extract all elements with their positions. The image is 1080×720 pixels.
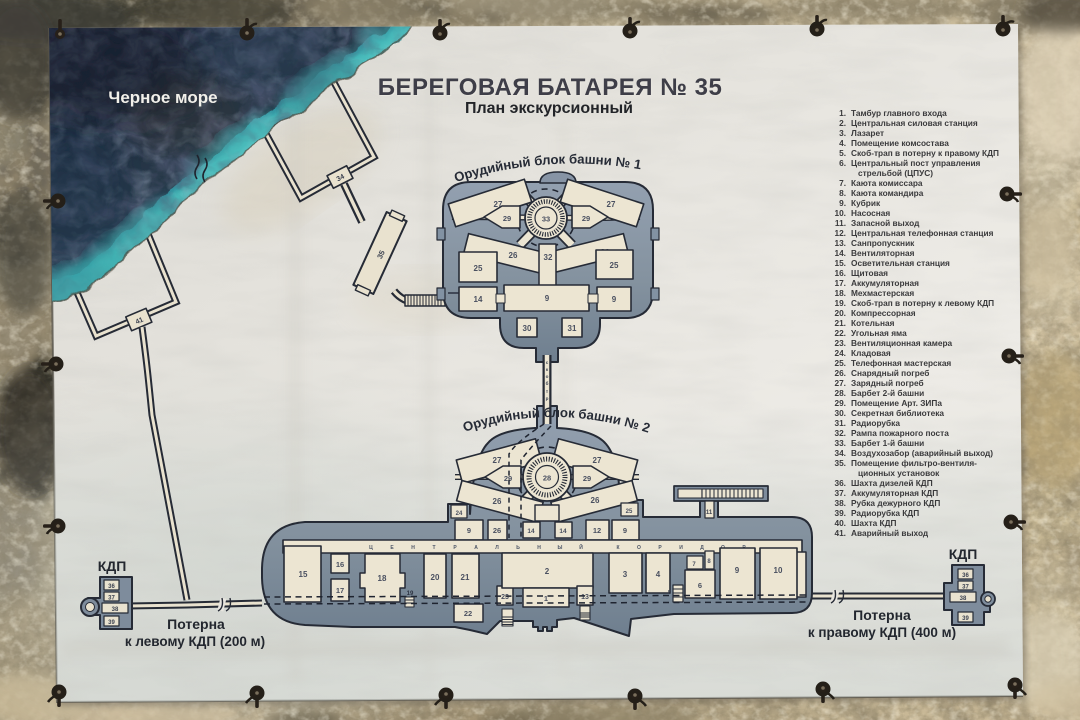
svg-text:Телефонная мастерская: Телефонная мастерская [851, 358, 951, 368]
svg-text:5.: 5. [839, 148, 846, 158]
svg-text:Скоб-трап в потерну к правому: Скоб-трап в потерну к правому КДП [851, 148, 999, 158]
svg-text:16.: 16. [834, 268, 846, 278]
svg-text:Й: Й [579, 543, 583, 551]
svg-text:Помещение комсостава: Помещение комсостава [851, 138, 949, 148]
svg-text:11.: 11. [835, 218, 846, 228]
svg-text:Зарядный погреб: Зарядный погреб [851, 378, 924, 388]
svg-text:Аварийный выход: Аварийный выход [851, 528, 929, 538]
svg-text:стрельбой (ЦПУС): стрельбой (ЦПУС) [858, 168, 933, 178]
svg-text:18.: 18. [834, 288, 846, 298]
svg-text:17.: 17. [834, 278, 846, 288]
svg-text:26: 26 [493, 497, 502, 506]
svg-text:10: 10 [774, 566, 783, 575]
svg-text:34.: 34. [834, 448, 846, 458]
svg-text:35.: 35. [834, 458, 846, 468]
svg-text:36.: 36. [834, 478, 846, 488]
svg-text:19.: 19. [834, 298, 846, 308]
svg-text:3: 3 [623, 570, 628, 579]
svg-text:4.: 4. [839, 138, 846, 148]
svg-text:24: 24 [456, 511, 463, 517]
svg-text:33: 33 [542, 215, 550, 224]
svg-text:25: 25 [626, 509, 633, 515]
svg-text:Л: Л [495, 545, 499, 551]
svg-text:План экскурсионный: План экскурсионный [465, 100, 633, 117]
svg-text:Помещение фильтро-вентиля-: Помещение фильтро-вентиля- [851, 458, 977, 468]
svg-text:б: б [546, 380, 549, 386]
svg-text:38: 38 [112, 607, 119, 613]
svg-text:Насосная: Насосная [851, 208, 890, 218]
svg-text:А: А [474, 545, 478, 551]
svg-text:30: 30 [523, 324, 532, 333]
svg-text:24.: 24. [834, 348, 846, 358]
svg-text:О: О [637, 545, 641, 551]
svg-text:к левому КДП (200 м): к левому КДП (200 м) [125, 634, 265, 649]
svg-text:Центральная телефонная станция: Центральная телефонная станция [851, 228, 994, 238]
svg-text:33.: 33. [834, 438, 846, 448]
svg-text:Скоб-трап в потерну к левому К: Скоб-трап в потерну к левому КДП [851, 298, 994, 308]
svg-text:Лазарет: Лазарет [851, 128, 884, 138]
svg-text:41.: 41. [834, 528, 846, 538]
svg-text:26: 26 [509, 251, 518, 260]
svg-text:18: 18 [378, 574, 387, 583]
svg-text:13: 13 [581, 594, 589, 601]
svg-text:21.: 21. [834, 318, 846, 328]
svg-text:Угольная яма: Угольная яма [851, 328, 907, 338]
svg-text:40.: 40. [834, 518, 846, 528]
svg-text:Шахта КДП: Шахта КДП [851, 518, 897, 528]
svg-text:27.: 27. [834, 378, 846, 388]
svg-text:Центральная силовая станция: Центральная силовая станция [851, 118, 978, 128]
svg-text:25.: 25. [834, 358, 846, 368]
svg-text:Кладовая: Кладовая [851, 348, 891, 358]
svg-text:БЕРЕГОВАЯ БАТАРЕЯ № 35: БЕРЕГОВАЯ БАТАРЕЯ № 35 [378, 74, 723, 101]
svg-text:Щитовая: Щитовая [851, 268, 888, 278]
svg-text:27: 27 [493, 456, 502, 465]
svg-text:Барбет 2-й башни: Барбет 2-й башни [851, 388, 924, 398]
svg-text:Ь: Ь [516, 545, 520, 551]
svg-text:Помещение Арт. ЗИПа: Помещение Арт. ЗИПа [851, 398, 942, 408]
svg-text:25: 25 [610, 261, 619, 270]
svg-text:Кубрик: Кубрик [851, 198, 881, 208]
svg-text:17: 17 [336, 586, 344, 595]
svg-text:КДП: КДП [949, 546, 978, 562]
svg-text:29: 29 [503, 214, 511, 223]
svg-text:32.: 32. [834, 428, 846, 438]
svg-text:Каюта комиссара: Каюта комиссара [851, 178, 923, 188]
svg-text:32: 32 [544, 253, 553, 262]
svg-text:39: 39 [108, 620, 115, 626]
svg-text:КДП: КДП [98, 558, 127, 574]
svg-text:Рубка дежурного КДП: Рубка дежурного КДП [851, 498, 940, 508]
svg-text:Центральный пост управления: Центральный пост управления [851, 158, 981, 168]
svg-text:37: 37 [108, 596, 115, 602]
svg-text:Потерна: Потерна [853, 607, 911, 623]
svg-text:Ц: Ц [369, 545, 373, 551]
svg-text:39: 39 [962, 616, 969, 622]
svg-text:10.: 10. [834, 208, 846, 218]
svg-text:29: 29 [583, 474, 591, 483]
svg-text:6: 6 [698, 581, 702, 590]
svg-text:Санпропускник: Санпропускник [851, 238, 915, 248]
svg-text:Рампа пожарного поста: Рампа пожарного поста [851, 428, 949, 438]
svg-text:26: 26 [591, 496, 600, 505]
svg-text:Шахта дизелей КДП: Шахта дизелей КДП [851, 478, 933, 488]
svg-text:31: 31 [568, 324, 577, 333]
svg-text:4: 4 [656, 570, 661, 579]
svg-text:Радиорубка: Радиорубка [851, 418, 900, 428]
svg-text:25: 25 [474, 264, 483, 273]
svg-text:14: 14 [474, 295, 483, 304]
svg-text:9: 9 [623, 526, 627, 535]
svg-text:12.: 12. [834, 228, 846, 238]
svg-text:37: 37 [962, 585, 969, 591]
svg-text:Д: Д [700, 545, 704, 551]
svg-text:39.: 39. [834, 508, 846, 518]
svg-text:15.: 15. [834, 258, 846, 268]
svg-text:9: 9 [735, 566, 740, 575]
svg-text:Потерна: Потерна [167, 616, 225, 632]
svg-text:Аккумуляторная КДП: Аккумуляторная КДП [851, 488, 938, 498]
svg-text:с: с [546, 360, 549, 365]
svg-text:Компрессорная: Компрессорная [851, 308, 916, 318]
svg-text:27: 27 [607, 200, 616, 209]
svg-text:Каюта командира: Каюта командира [851, 188, 924, 198]
svg-text:11: 11 [706, 510, 713, 516]
svg-text:р: р [546, 396, 549, 401]
svg-text:27: 27 [494, 200, 503, 209]
svg-text:Н: Н [411, 545, 415, 551]
svg-text:Н: Н [537, 545, 541, 551]
svg-text:Запасной выход: Запасной выход [851, 218, 920, 228]
svg-text:15: 15 [299, 570, 308, 579]
svg-text:3.: 3. [839, 128, 846, 138]
svg-text:Т: Т [432, 545, 435, 551]
svg-text:22: 22 [464, 609, 472, 618]
svg-text:14.: 14. [834, 248, 846, 258]
svg-text:20.: 20. [834, 308, 846, 318]
svg-text:Вентиляционная камера: Вентиляционная камера [851, 338, 953, 348]
svg-text:28: 28 [543, 474, 551, 483]
svg-text:Радиорубка КДП: Радиорубка КДП [851, 508, 919, 518]
svg-text:23.: 23. [834, 338, 846, 348]
svg-text:38.: 38. [834, 498, 846, 508]
svg-text:9: 9 [612, 295, 617, 304]
svg-text:Снарядный погреб: Снарядный погреб [851, 368, 929, 378]
svg-text:2.: 2. [839, 118, 846, 128]
svg-text:29: 29 [504, 474, 512, 483]
svg-text:29.: 29. [834, 398, 846, 408]
svg-text:38: 38 [960, 596, 967, 602]
svg-text:7.: 7. [839, 178, 846, 188]
svg-text:8.: 8. [839, 188, 846, 198]
svg-text:И: И [679, 545, 683, 551]
svg-text:Вентиляторная: Вентиляторная [851, 248, 915, 258]
svg-text:Ы: Ы [558, 545, 563, 551]
svg-text:Котельная: Котельная [851, 318, 895, 328]
svg-text:Тамбур главного входа: Тамбур главного входа [851, 108, 947, 118]
svg-text:13.: 13. [834, 238, 846, 248]
svg-text:Осветительная станция: Осветительная станция [851, 258, 950, 268]
svg-text:36: 36 [962, 573, 969, 579]
svg-text:21: 21 [461, 573, 470, 582]
svg-text:Черное море: Черное море [108, 88, 217, 107]
svg-text:26.: 26. [834, 368, 846, 378]
svg-text:Барбет 1-й башни: Барбет 1-й башни [851, 438, 924, 448]
svg-text:Секретная библиотека: Секретная библиотека [851, 408, 944, 418]
svg-text:9: 9 [467, 526, 471, 535]
svg-text:22.: 22. [834, 328, 846, 338]
svg-text:28.: 28. [834, 388, 846, 398]
svg-text:14: 14 [559, 528, 567, 535]
svg-text:Аккумуляторная: Аккумуляторная [851, 278, 919, 288]
svg-text:Мехмастерская: Мехмастерская [851, 288, 914, 298]
svg-text:26: 26 [493, 526, 501, 535]
svg-text:16: 16 [336, 560, 344, 569]
svg-text:12: 12 [593, 526, 601, 535]
svg-text:27: 27 [593, 456, 602, 465]
svg-text:31.: 31. [834, 418, 846, 428]
svg-text:1.: 1. [839, 108, 846, 118]
svg-text:30.: 30. [834, 408, 846, 418]
svg-text:36: 36 [108, 584, 115, 590]
svg-text:2: 2 [545, 567, 550, 576]
svg-text:Воздухозабор (аварийный выход): Воздухозабор (аварийный выход) [851, 448, 993, 458]
svg-text:9.: 9. [839, 198, 846, 208]
svg-text:29: 29 [582, 214, 590, 223]
svg-text:1: 1 [544, 594, 548, 603]
svg-text:9: 9 [545, 294, 550, 303]
svg-text:к правому КДП (400 м): к правому КДП (400 м) [808, 625, 956, 640]
svg-text:о: о [546, 374, 549, 379]
svg-text:37.: 37. [834, 488, 846, 498]
svg-text:14: 14 [527, 528, 535, 535]
svg-text:ционных установок: ционных установок [858, 468, 940, 478]
svg-text:23: 23 [501, 594, 509, 601]
svg-text:6.: 6. [839, 158, 846, 168]
svg-text:20: 20 [431, 573, 440, 582]
